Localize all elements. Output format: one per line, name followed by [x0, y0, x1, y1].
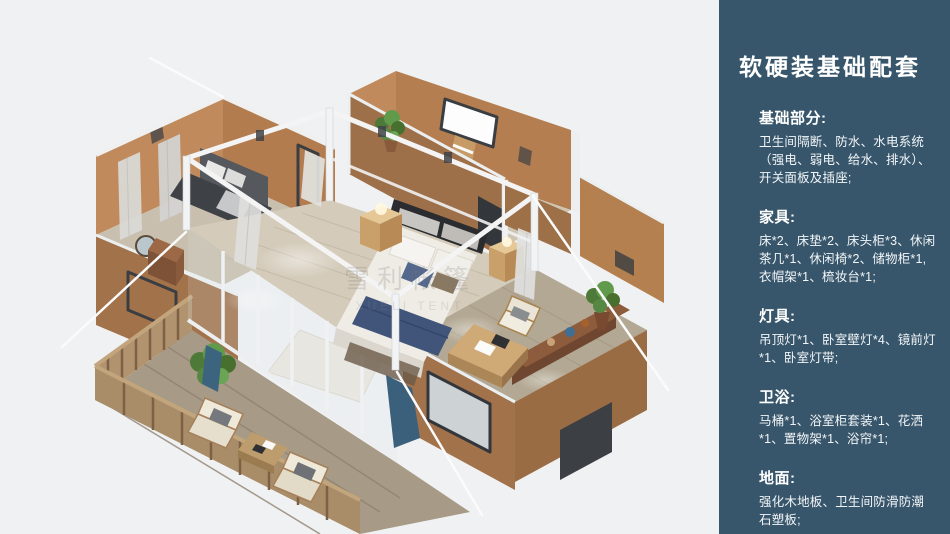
section-body: 吊顶灯*1、卧室壁灯*4、镜前灯*1、卧室灯带;: [759, 331, 936, 367]
section-furniture: 家具: 床*2、床垫*2、床头柜*3、休闲茶几*1、休闲椅*2、储物柜*1, 衣…: [759, 206, 936, 286]
svg-text:雪利帐篷: 雪利帐篷: [344, 264, 476, 294]
svg-text:XUELI TENT: XUELI TENT: [355, 299, 464, 313]
floorplan-panel: 雪利帐篷 XUELI TENT: [0, 0, 719, 534]
section-lighting: 灯具: 吊顶灯*1、卧室壁灯*4、镜前灯*1、卧室灯带;: [759, 305, 936, 367]
section-heading: 卫浴:: [759, 386, 936, 407]
section-body: 卫生间隔断、防水、水电系统（强电、弱电、给水、排水）、开关面板及插座;: [759, 133, 936, 187]
section-body: 强化木地板、卫生间防滑防潮石塑板;: [759, 493, 936, 529]
section-heading: 地面:: [759, 467, 936, 488]
slide: 雪利帐篷 XUELI TENT 软硬装基础配套 基础部分: 卫生间隔断、防水、水…: [0, 0, 950, 534]
watermark: 雪利帐篷 XUELI TENT: [344, 264, 476, 313]
section-heading: 灯具:: [759, 305, 936, 326]
section-body: 床*2、床垫*2、床头柜*3、休闲茶几*1、休闲椅*2、储物柜*1, 衣帽架*1…: [759, 232, 936, 286]
section-basics: 基础部分: 卫生间隔断、防水、水电系统（强电、弱电、给水、排水）、开关面板及插座…: [759, 107, 936, 187]
section-heading: 家具:: [759, 206, 936, 227]
section-body: 马桶*1、浴室柜套装*1、花洒*1、置物架*1、浴帘*1;: [759, 412, 936, 448]
spec-sections: 基础部分: 卫生间隔断、防水、水电系统（强电、弱电、给水、排水）、开关面板及插座…: [759, 107, 936, 529]
section-bathroom: 卫浴: 马桶*1、浴室柜套装*1、花洒*1、置物架*1、浴帘*1;: [759, 386, 936, 448]
section-heading: 基础部分:: [759, 107, 936, 128]
sidebar-title: 软硬装基础配套: [739, 48, 938, 82]
section-flooring: 地面: 强化木地板、卫生间防滑防潮石塑板;: [759, 467, 936, 529]
floorplan-3d-render: 雪利帐篷 XUELI TENT: [0, 0, 719, 534]
spec-sidebar: 软硬装基础配套 基础部分: 卫生间隔断、防水、水电系统（强电、弱电、给水、排水）…: [719, 0, 950, 534]
